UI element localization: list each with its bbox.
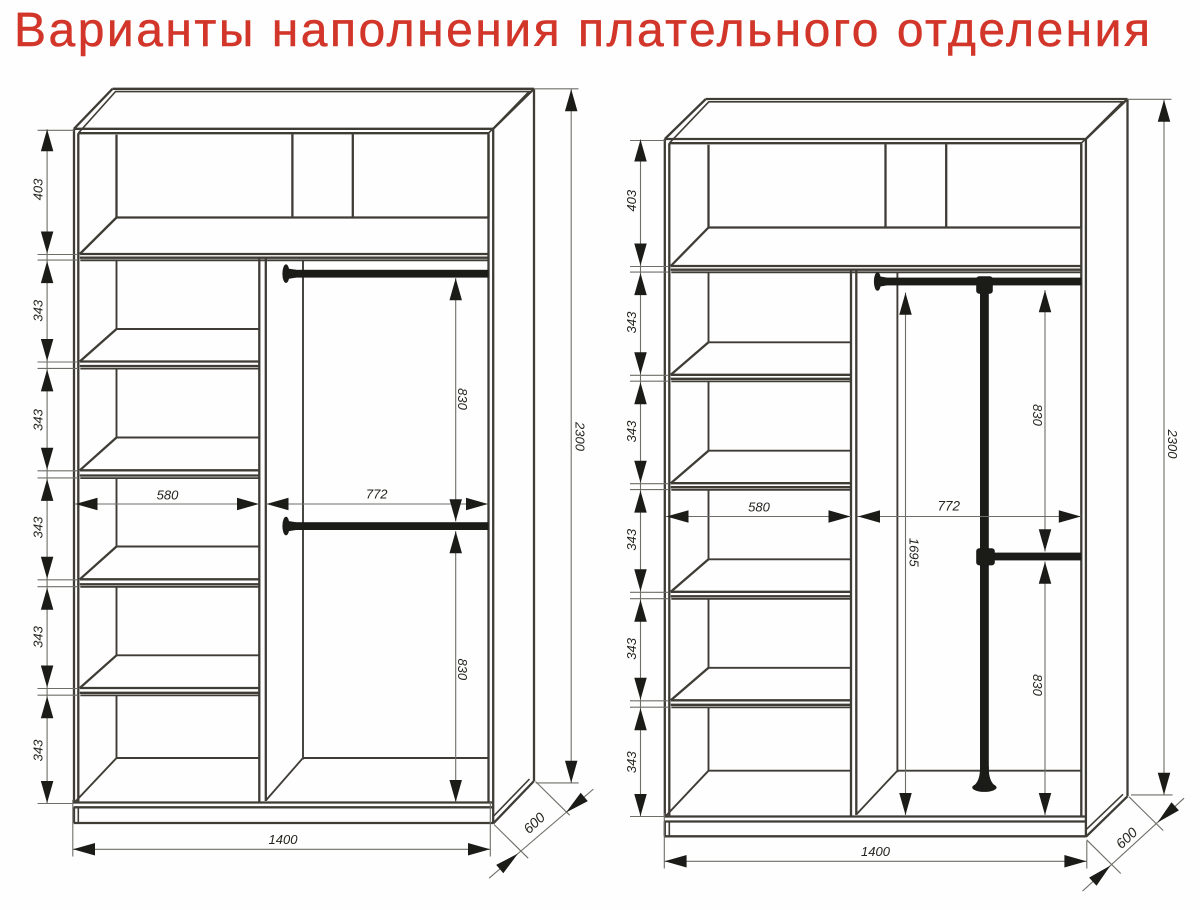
svg-text:1400: 1400 [861,844,891,859]
svg-text:2300: 2300 [573,421,588,452]
svg-text:772: 772 [366,487,388,502]
svg-text:343: 343 [31,739,46,761]
svg-text:403: 403 [624,189,639,211]
svg-text:1695: 1695 [907,538,922,568]
svg-text:830: 830 [455,658,470,680]
svg-text:580: 580 [157,488,179,503]
svg-text:1400: 1400 [269,832,299,847]
svg-text:343: 343 [31,516,46,538]
svg-text:343: 343 [624,420,639,442]
svg-text:772: 772 [938,499,961,514]
svg-text:830: 830 [1030,674,1045,696]
svg-text:343: 343 [31,408,46,430]
svg-text:Варианты наполнения плательног: Варианты наполнения плательного отделени… [14,4,1152,57]
svg-text:2300: 2300 [1165,429,1180,460]
svg-text:343: 343 [624,751,639,773]
svg-text:343: 343 [624,637,639,659]
svg-text:343: 343 [31,625,46,647]
svg-text:830: 830 [455,388,470,410]
svg-text:830: 830 [1030,404,1045,426]
svg-text:343: 343 [624,528,639,550]
svg-text:403: 403 [31,178,46,200]
svg-text:343: 343 [624,311,639,333]
svg-text:343: 343 [31,299,46,321]
svg-text:580: 580 [748,500,770,515]
